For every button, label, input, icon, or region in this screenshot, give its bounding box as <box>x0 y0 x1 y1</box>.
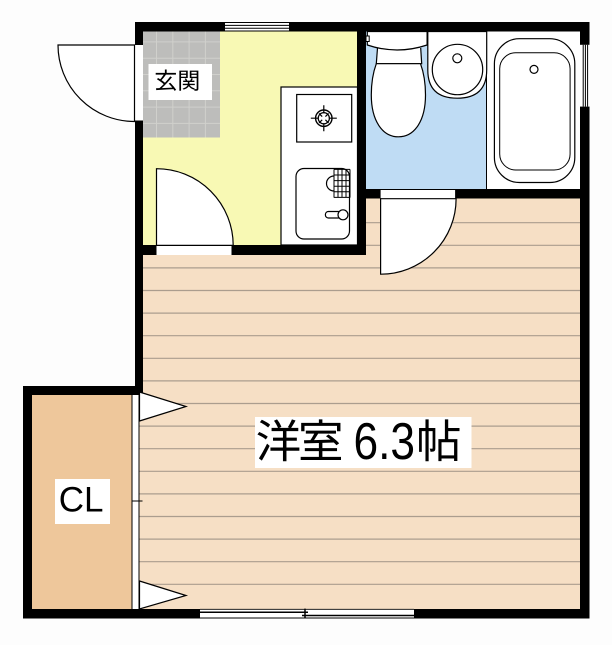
svg-text:CL: CL <box>59 480 104 519</box>
svg-text:6.3: 6.3 <box>354 414 416 471</box>
